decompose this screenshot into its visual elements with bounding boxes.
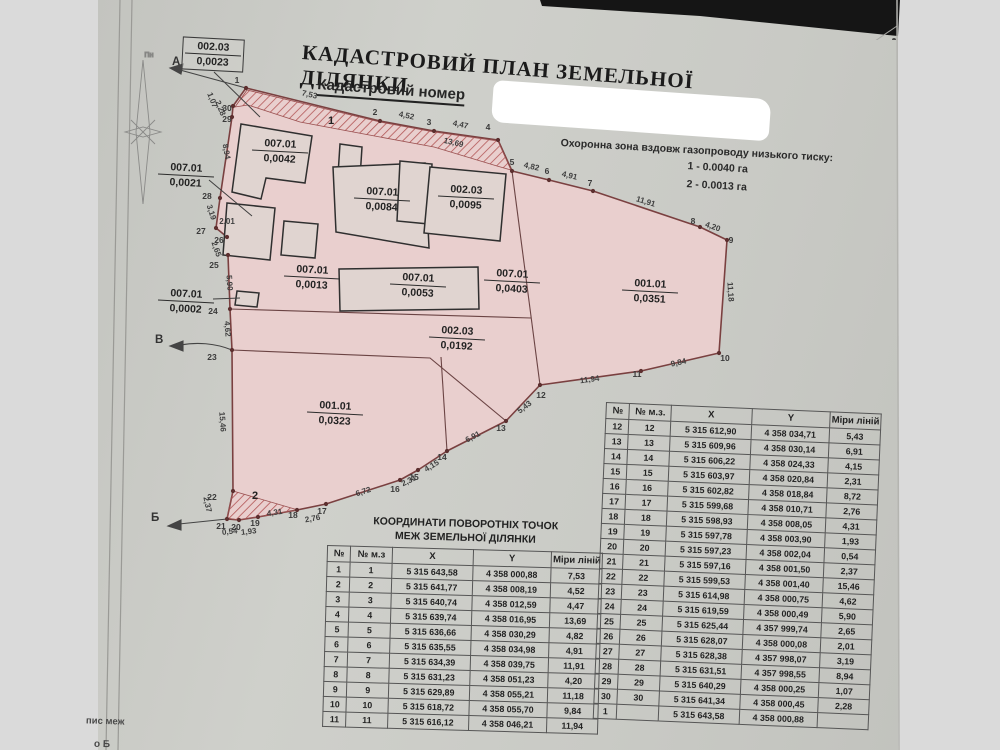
boundary-point-dot — [225, 235, 229, 239]
map-edge-measure: 15,46 — [217, 412, 227, 433]
cell-point-no: 21 — [600, 553, 624, 569]
cell-boundary-no: 18 — [625, 509, 667, 526]
cell-point-no: 11 — [323, 711, 347, 727]
map-point-number: 10 — [720, 353, 730, 363]
cell-point-no: 1 — [593, 703, 617, 719]
cell-boundary-no: 13 — [628, 434, 670, 451]
cell-length: 7,53 — [551, 568, 602, 584]
cell-point-no: 18 — [601, 508, 625, 524]
coords-table-left-block: КООРДИНАТИ ПОВОРОТНІХ ТОЧОК МЕЖ ЗЕМЕЛЬНО… — [322, 513, 604, 735]
cell-point-no: 30 — [594, 688, 618, 704]
map-edge-measure: 4,82 — [523, 160, 541, 172]
cell-boundary-no: 21 — [623, 554, 665, 571]
screenshot-canvas: КАДАСТРОВИЙ ПЛАН ЗЕМЕЛЬНОЇ ДІЛЯНКИ Кадас… — [0, 0, 1000, 750]
map-point-number: 4 — [486, 122, 491, 132]
cell-point-no: 13 — [605, 433, 629, 449]
parcel-label: 001.01 0,0351 — [621, 277, 678, 307]
cell-x: 5 315 643,58 — [658, 706, 739, 724]
direction-label-v: В — [155, 334, 163, 346]
parcel-label: 007.01 0,0084 — [353, 185, 410, 215]
map-edge-measure: 0,54 — [222, 526, 239, 537]
boundary-point-dot — [231, 104, 235, 108]
cell-boundary-no: 10 — [346, 697, 388, 713]
cell-point-no: 28 — [595, 658, 619, 674]
boundary-point-dot — [214, 226, 218, 230]
cell-boundary-no: 6 — [348, 637, 390, 653]
cell-point-no: 24 — [598, 598, 622, 614]
arrow-b-head — [168, 520, 181, 530]
boundary-point-dot — [295, 508, 299, 512]
cell-point-no: 1 — [327, 561, 351, 577]
col-header: № — [327, 546, 351, 563]
cell-point-no: 19 — [601, 523, 625, 539]
boundary-point-dot — [244, 86, 248, 90]
cell-boundary-no: 30 — [617, 689, 659, 706]
parcel-label: 002.03 0,0095 — [437, 183, 494, 213]
cell-length: 4,82 — [549, 628, 600, 644]
map-point-number: 28 — [202, 191, 212, 201]
map-point-number: 12 — [536, 390, 546, 400]
coords-table-right-block: № № м.з. X Y Міри ліній 12 12 5 315 612,… — [593, 402, 882, 730]
cell-point-no: 20 — [600, 538, 624, 554]
cell-point-no: 16 — [603, 478, 627, 494]
bottom-fragment: о Б — [94, 739, 110, 750]
cell-boundary-no: 14 — [627, 449, 669, 466]
cell-boundary-no: 4 — [349, 607, 391, 623]
boundary-point-dot — [538, 383, 542, 387]
map-point-number: 13 — [496, 423, 506, 433]
cell-point-no: 22 — [599, 568, 623, 584]
map-point-number: 9 — [729, 235, 734, 245]
cell-point-no: 6 — [325, 636, 349, 652]
map-edge-measure: 5,90 — [224, 275, 234, 292]
cell-point-no: 15 — [603, 463, 627, 479]
map-point-number: 2 — [373, 107, 378, 117]
cell-length: 4,47 — [550, 598, 601, 614]
col-header: № м.з. — [629, 404, 671, 422]
cell-boundary-no: 28 — [619, 659, 661, 676]
cell-x: 5 315 616,12 — [387, 713, 468, 730]
parcel-label: 007.01 0,0021 — [157, 161, 214, 191]
col-header: Міри ліній — [551, 552, 602, 569]
cell-boundary-no: 16 — [626, 479, 668, 496]
zone-2-label: 2 — [252, 490, 258, 502]
cell-length: 4,20 — [548, 673, 599, 689]
map-point-number: 3 — [427, 117, 432, 127]
coords-table-left: № № м.з X Y Міри ліній 1 1 5 315 643,58 … — [322, 545, 603, 735]
cell-point-no: 17 — [602, 493, 626, 509]
map-edge-measure: 11,18 — [725, 282, 735, 303]
cell-boundary-no: 24 — [621, 599, 663, 616]
cell-boundary-no: 17 — [625, 494, 667, 511]
boundary-point-dot — [725, 238, 729, 242]
map-point-number: 5 — [510, 157, 515, 167]
map-edge-measure: 4,47 — [452, 119, 470, 131]
col-header: № — [606, 403, 630, 420]
north-compass-icon: Пн — [125, 52, 161, 204]
map-edge-measure: 8,94 — [221, 143, 233, 160]
cell-point-no: 9 — [323, 681, 347, 697]
compass-north-label: Пн — [144, 52, 153, 59]
parcel-label: 007.01 0,0042 — [251, 137, 308, 167]
boundary-point-dot — [547, 178, 551, 182]
parcel-area: 0,0023 — [184, 54, 241, 70]
cell-boundary-no: 9 — [347, 682, 389, 698]
map-edge-measure: 11,94 — [579, 374, 600, 386]
cell-point-no: 10 — [323, 696, 347, 712]
cell-boundary-no: 15 — [627, 464, 669, 481]
map-point-number: 14 — [437, 452, 447, 462]
cell-boundary-no: 26 — [620, 629, 662, 646]
cell-boundary-no: 5 — [349, 622, 391, 638]
boundary-point-dot — [445, 449, 449, 453]
boundary-point-dot — [256, 515, 260, 519]
cell-point-no: 23 — [598, 583, 622, 599]
cell-point-no: 29 — [595, 673, 619, 689]
cell-point-no: 4 — [325, 606, 349, 622]
cell-point-no: 27 — [596, 643, 620, 659]
map-edge-measure: 2,01 — [219, 217, 235, 226]
boundary-point-dot — [226, 253, 230, 257]
map-edge-measure: 1,93 — [241, 526, 258, 537]
boundary-point-dot — [378, 119, 382, 123]
boundary-point-dot — [591, 189, 595, 193]
parcel-label: 002.03 0,0023 — [181, 36, 245, 72]
cell-boundary-no: 22 — [622, 569, 664, 586]
cell-boundary-no: 29 — [618, 674, 660, 691]
cell-boundary-no: 25 — [620, 614, 662, 631]
cell-boundary-no: 12 — [629, 419, 671, 436]
parcel-label: 001.01 0,0323 — [306, 399, 363, 429]
cell-length: 11,91 — [548, 658, 599, 674]
cell-boundary-no: 27 — [619, 644, 661, 661]
cell-point-no: 12 — [605, 419, 629, 435]
col-header: № м.з — [351, 546, 393, 563]
map-edge-measure: 3,19 — [205, 203, 219, 221]
coords-table-right: № № м.з. X Y Міри ліній 12 12 5 315 612,… — [593, 402, 882, 730]
boundary-point-dot — [324, 502, 328, 506]
zone-1-label: 1 — [328, 115, 334, 127]
map-edge-measure: 9,84 — [670, 356, 688, 368]
map-edge-measure: 4,62 — [222, 321, 232, 338]
parcel-label: 007.01 0,0403 — [483, 267, 540, 297]
direction-label-a: А — [172, 56, 180, 68]
cell-boundary-no: 8 — [347, 667, 389, 683]
cell-length: 13,69 — [550, 613, 601, 629]
cell-y: 4 358 000,88 — [739, 709, 818, 727]
cell-point-no: 25 — [597, 613, 621, 629]
cell-point-no: 7 — [324, 651, 348, 667]
cell-point-no: 3 — [326, 591, 350, 607]
parcel-label: 007.01 0,0053 — [389, 271, 446, 301]
cell-boundary-no: 2 — [350, 577, 392, 593]
boundary-point-dot — [398, 478, 402, 482]
boundary-point-dot — [698, 225, 702, 229]
cell-boundary-no: 20 — [624, 539, 666, 556]
map-point-number: 8 — [691, 216, 696, 226]
cell-boundary-no — [617, 704, 659, 721]
parcel-label: 007.01 0,0002 — [157, 287, 214, 317]
boundary-point-dot — [717, 351, 721, 355]
building — [281, 221, 318, 258]
boundary-point-dot — [639, 369, 643, 373]
arrow-v-line — [181, 343, 232, 350]
boundary-point-dot — [228, 307, 232, 311]
boundary-point-dot — [496, 138, 500, 142]
cell-point-no: 8 — [324, 666, 348, 682]
boundary-point-dot — [230, 348, 234, 352]
parcel-label: 007.01 0,0013 — [283, 263, 340, 293]
cell-boundary-no: 7 — [348, 652, 390, 668]
bottom-fragment-opys-mezh: пис меж — [86, 715, 125, 727]
map-point-number: 25 — [209, 260, 219, 270]
boundary-point-dot — [231, 489, 235, 493]
cell-boundary-no: 1 — [350, 562, 392, 578]
cell-length: 11,18 — [548, 688, 599, 704]
cell-y: 4 358 046,21 — [468, 715, 547, 732]
map-edge-measure: 2,76 — [304, 513, 321, 525]
direction-label-b: Б — [151, 512, 159, 524]
boundary-point-dot — [504, 419, 508, 423]
cell-length — [817, 713, 868, 730]
building — [235, 291, 259, 307]
cell-length: 9,84 — [547, 703, 598, 719]
cell-boundary-no: 19 — [624, 524, 666, 541]
cell-boundary-no: 3 — [349, 592, 391, 608]
boundary-point-dot — [510, 169, 514, 173]
boundary-point-dot — [237, 518, 241, 522]
cell-length: 11,94 — [547, 718, 598, 734]
map-edge-measure: 4,31 — [266, 507, 283, 518]
map-point-number: 27 — [196, 226, 206, 236]
boundary-point-dot — [225, 517, 229, 521]
boundary-point-dot — [218, 196, 222, 200]
building — [223, 203, 275, 260]
cell-point-no: 5 — [325, 621, 349, 637]
cell-length: 4,91 — [549, 643, 600, 659]
cell-point-no: 2 — [326, 576, 350, 592]
boundary-point-dot — [230, 115, 234, 119]
map-point-number: 6 — [545, 166, 550, 176]
arrow-v-head — [170, 341, 183, 351]
parcel-label: 002.03 0,0192 — [428, 324, 485, 354]
cell-length: 4,52 — [550, 583, 601, 599]
boundary-point-dot — [416, 468, 420, 472]
cell-boundary-no: 11 — [346, 712, 388, 728]
cell-boundary-no: 23 — [622, 584, 664, 601]
map-point-number: 23 — [207, 352, 217, 362]
map-point-number: 16 — [390, 484, 400, 494]
map-point-number: 1 — [235, 75, 240, 85]
cell-point-no: 26 — [596, 628, 620, 644]
boundary-point-dot — [432, 129, 436, 133]
map-edge-measure: 4,52 — [398, 110, 416, 122]
map-edge-measure: 2,37 — [201, 496, 213, 514]
cell-point-no: 14 — [604, 448, 628, 464]
